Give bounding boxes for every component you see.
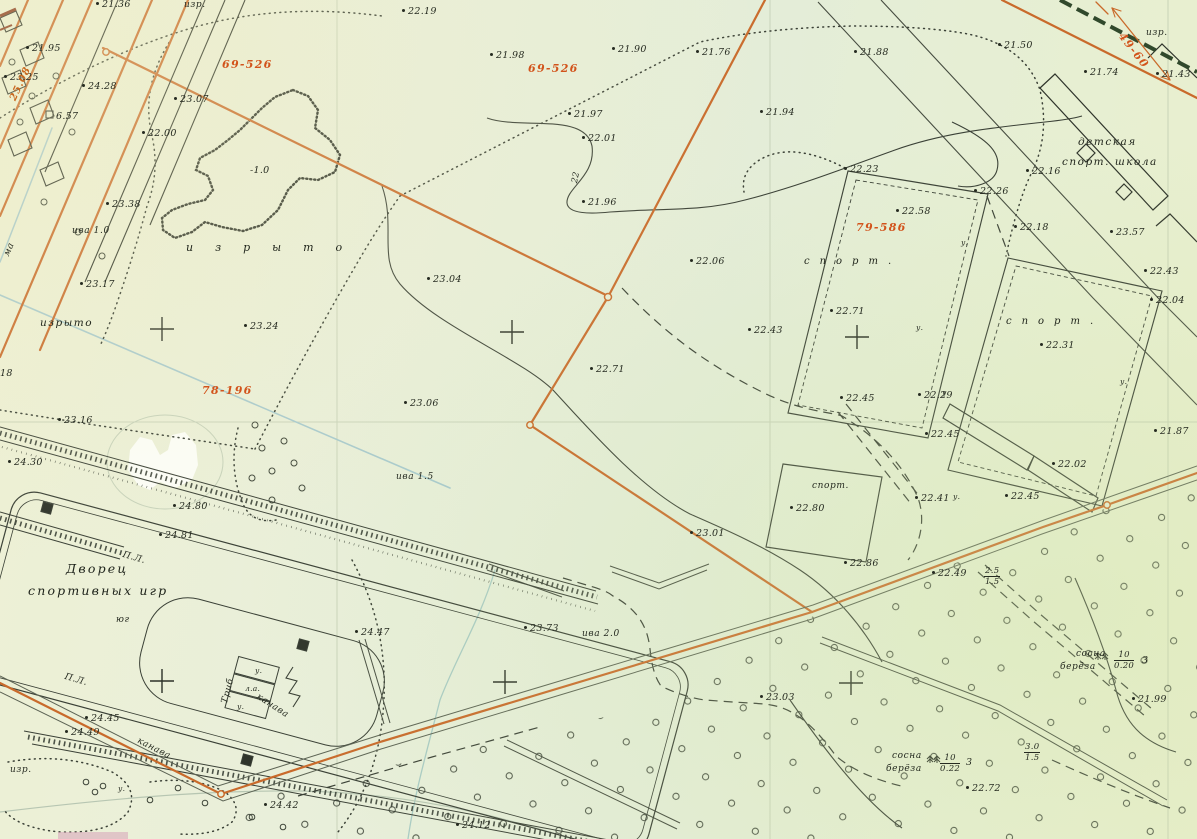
contour-elevation-label: 22 [570, 171, 582, 184]
elevation-point-label: 22.80 [790, 504, 825, 514]
map-text-label: П.Л. [63, 672, 88, 688]
elevation-point-label: 23.17 [80, 280, 115, 290]
elevation-point-label: 21.98 [490, 51, 525, 61]
elevation-point-label: 23.01 [690, 529, 725, 539]
topographic-map-canvas: изр.21.3622.1921.9869-52669-52621.9021.7… [0, 0, 1197, 839]
benchmark-label: 6.57 [56, 111, 78, 122]
elevation-point-label: 23.57 [1110, 228, 1145, 238]
elevation-point-label: 22.45 [840, 394, 875, 404]
fraction-denominator: 0.20 [1114, 661, 1134, 671]
vegetation-pine-label: сосна [1076, 649, 1106, 659]
parcel-number-label: 69-526 [222, 58, 273, 71]
elevation-point-label: 24.80 [173, 502, 208, 512]
izryto-label: изрыто [40, 317, 93, 329]
map-text-label: у. [916, 323, 923, 332]
stand-metrics-label: 100.22 [940, 753, 960, 774]
elevation-point-label: 22.43 [1144, 267, 1179, 277]
parcel-number-label: 69-526 [528, 62, 579, 75]
vegetation-willow-label: ива 1.5 [396, 472, 434, 482]
elevation-point-label: 22.31 [1040, 341, 1075, 351]
elevation-point-label: 24.42 [264, 801, 299, 811]
elevation-point-label: 23.06 [404, 399, 439, 409]
sport-ground-label: спорт. [1006, 316, 1103, 327]
elevation-point-label: 23.16 [58, 416, 93, 426]
map-text-label: у. [1120, 377, 1127, 386]
map-text-label: у. [237, 702, 244, 711]
elevation-point-label: 24.28 [82, 82, 117, 92]
elevation-point-label: 22.04 [1150, 296, 1185, 306]
map-text-label: у. [961, 238, 968, 247]
elevation-point-label: 23.73 [524, 624, 559, 634]
palace-of-sport-games-label: спортивных игр [28, 583, 168, 598]
vegetation-pine-label: сосна [892, 751, 922, 761]
elevation-point-label: 22.00 [142, 129, 177, 139]
map-text-label: у. [942, 388, 949, 397]
elevation-point-label: 22.26 [974, 187, 1009, 197]
elevation-point-label: 21.96 [582, 198, 617, 208]
orange-mark-label: 25.08 [8, 65, 33, 103]
clearing-ratio-label: 2.51.5 [984, 566, 1000, 587]
vegetation-willow-label: ива 1.0 [72, 226, 110, 236]
izryto-label: изрыто [186, 241, 364, 254]
sport-ground-label: спорт. [812, 481, 849, 491]
elevation-point-label: 22.41 [915, 494, 950, 504]
abbr-izr: изр. [184, 0, 206, 10]
elevation-point-label: 22.01 [582, 134, 617, 144]
elevation-point-label: 21.94 [760, 108, 795, 118]
ditch-label: канава [255, 692, 291, 720]
elevation-point-label: 22.71 [830, 307, 865, 317]
elevation-point-label: 21.97 [568, 110, 603, 120]
fraction-denominator: 1.5 [984, 577, 1000, 587]
street-name-fragment: ма [2, 241, 17, 258]
elevation-point-label: 21.90 [612, 45, 647, 55]
elevation-point-label: 24.81 [159, 531, 194, 541]
stands-label: Триб [220, 677, 236, 704]
abbr-izr: изр. [10, 765, 32, 775]
elevation-point-label: 22.45 [1005, 492, 1040, 502]
fraction-denominator: 1.5 [1024, 753, 1040, 763]
map-text-label: 18 [0, 368, 13, 379]
vegetation-birch-label: берёза [886, 764, 922, 774]
elevation-point-label: 21.50 [998, 41, 1033, 51]
parcel-number-label: 78-196 [202, 384, 253, 397]
clearing-ratio-label: 3.01.5 [1024, 742, 1040, 763]
map-text-label: у. [953, 492, 960, 501]
palace-of-sport-games-label: Дворец [66, 561, 128, 576]
map-text-label: л.а. [245, 684, 260, 693]
map-text-label: юг [116, 615, 130, 625]
fraction-numerator: 10 [940, 753, 960, 764]
elevation-point-label: 22.19 [402, 7, 437, 17]
abbr-izr: изр. [1146, 28, 1168, 38]
elevation-point-label: 22.23 [844, 165, 879, 175]
sport-ground-label: спорт. [804, 256, 901, 267]
elevation-point-label: 21.99 [1132, 695, 1167, 705]
vegetation-willow-label: ива 2.0 [582, 629, 620, 639]
elevation-point-label: 22.72 [966, 784, 1001, 794]
map-text-label: у. [255, 666, 262, 675]
elevation-point-label: 24.45 [85, 714, 120, 724]
depression-depth-label: -1.0 [250, 165, 270, 176]
school-label-line2: спорт. школа [1062, 156, 1158, 168]
elevation-point-label: 24.49 [65, 728, 100, 738]
elevation-point-label: 24.30 [8, 458, 43, 468]
elevation-point-label: 22.58 [896, 207, 931, 217]
elevation-point-label: 24.12 [456, 821, 491, 831]
map-text-label: 3 [1142, 655, 1148, 666]
elevation-point-label: 22.02 [1052, 460, 1087, 470]
elevation-point-label: 21.95 [26, 44, 61, 54]
elevation-point-label: 23.38 [106, 200, 141, 210]
fraction-denominator: 0.22 [940, 764, 960, 774]
elevation-point-label: 22.49 [932, 569, 967, 579]
elevation-point-label: 21.36 [96, 0, 131, 10]
map-text-label: у. [118, 784, 125, 793]
elevation-point-label: 21.43 [1156, 70, 1191, 80]
vegetation-birch-label: берёза [1060, 662, 1096, 672]
stand-metrics-label: 100.20 [1114, 650, 1134, 671]
elevation-point-label: 22.71 [590, 365, 625, 375]
elevation-point-label: 22.06 [690, 257, 725, 267]
map-text-label: 3 [966, 757, 972, 768]
elevation-point-label: 21.87 [1154, 427, 1189, 437]
elevation-point-label: 23.24 [244, 322, 279, 332]
elevation-point-label: 24.47 [355, 628, 390, 638]
elevation-point-label: 21.74 [1084, 68, 1119, 78]
parcel-number-label: 79-586 [856, 221, 907, 234]
elevation-point-label: 23.07 [174, 95, 209, 105]
map-labels-layer: изр.21.3622.1921.9869-52669-52621.9021.7… [0, 0, 1197, 839]
elevation-point-label: 21.76 [696, 48, 731, 58]
elevation-point-label: 22.18 [1014, 223, 1049, 233]
elevation-point-label: 22.45 [925, 430, 960, 440]
elevation-point-label: 22.86 [844, 559, 879, 569]
elevation-point-label: 22.43 [748, 326, 783, 336]
school-label-line1: детская [1078, 136, 1137, 148]
elevation-point-label: 23.03 [760, 693, 795, 703]
fraction-numerator: 10 [1114, 650, 1134, 661]
fraction-numerator: 3.0 [1024, 742, 1040, 753]
elevation-point-label: 21.88 [854, 48, 889, 58]
elevation-point-label: 22.16 [1026, 167, 1061, 177]
ditch-label: канава [135, 736, 172, 761]
fraction-numerator: 2.5 [984, 566, 1000, 577]
elevation-point-label: 23.04 [427, 275, 462, 285]
